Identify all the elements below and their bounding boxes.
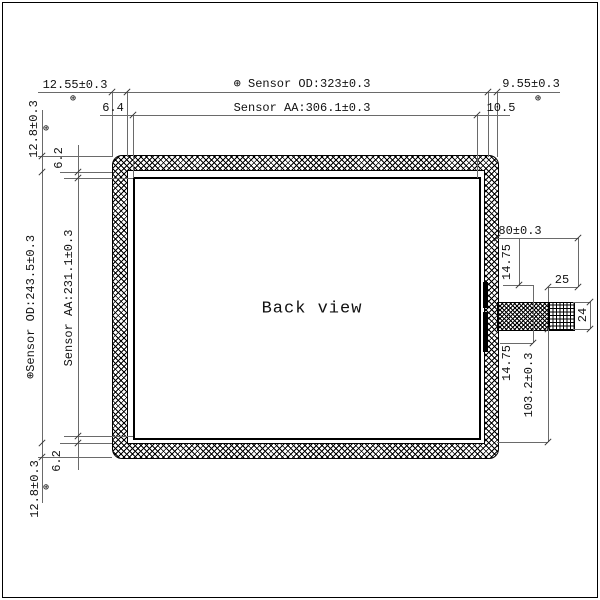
- dim-label-od-left-margin: 12.55±0.3: [43, 79, 108, 91]
- dim-line-tail-offset-link: [533, 285, 534, 343]
- ext-line-left-top-aa: [64, 178, 133, 179]
- dim-label-od-right-margin: 9.55±0.3: [502, 78, 560, 90]
- dim-label-sensor-od-width: ⊕ Sensor OD:323±0.3: [234, 78, 371, 90]
- dim-line-tail-length: [497, 238, 578, 239]
- engineering-drawing: Back view: [0, 0, 600, 600]
- ext-line-left-bottom-band: [60, 443, 112, 444]
- dim-line-top-aa: [100, 115, 510, 116]
- fpc-bond-pad-upper: [483, 282, 488, 308]
- dim-label-tail-lower-offset: 14.75: [501, 345, 513, 381]
- dim-label-sensor-od-height: ⊕Sensor OD:243.5±0.3: [25, 235, 37, 379]
- dim-line-stiffener-width: [548, 287, 578, 288]
- dim-line-left-aa: [78, 145, 79, 470]
- ext-line-band-left-inner: [127, 92, 128, 157]
- ext-line-panel-bottom-right: [497, 442, 548, 443]
- ext-line-aa-right: [477, 115, 478, 178]
- fpc-bond-pad-lower: [483, 312, 488, 352]
- ext-line-left-top-band: [60, 172, 112, 173]
- ext-line-aa-left: [133, 115, 134, 178]
- position-symbol-icon: ⊕: [43, 125, 49, 135]
- dim-label-sensor-aa-width: Sensor AA:306.1±0.3: [234, 102, 371, 114]
- dim-label-left-top-margin: 12.8±0.3: [28, 100, 40, 158]
- dim-label-tail-length: 80±0.3: [498, 225, 541, 237]
- view-title: Back view: [262, 301, 363, 318]
- dim-label-tail-upper-offset: 14.75: [501, 244, 513, 280]
- position-symbol-icon: ⊕: [70, 95, 76, 105]
- dim-line-tail-upper-offset: [519, 238, 520, 285]
- dim-label-aa-right-margin: 10.5: [487, 102, 516, 114]
- dim-label-stiffener-width: 25: [555, 274, 569, 286]
- dim-label-left-bottom-aa-gap: 6.2: [51, 450, 63, 472]
- fpc-tail: [497, 302, 550, 331]
- position-symbol-icon: ⊕: [43, 484, 49, 494]
- dim-label-aa-left-margin: 6.4: [102, 102, 124, 114]
- dim-line-stiffener-height: [590, 302, 591, 329]
- dim-label-stiffener-height: 24: [577, 308, 589, 322]
- ext-line-stiffener-left: [548, 287, 549, 302]
- dim-line-tail-bottom-offset: [548, 329, 549, 442]
- fpc-stiffener: [548, 302, 575, 331]
- dim-line-tail-length-end: [578, 238, 579, 287]
- ext-line-left-bottom-aa: [64, 436, 133, 437]
- dim-label-sensor-aa-height: Sensor AA:231.1±0.3: [63, 230, 75, 367]
- dim-label-left-bottom-margin: 12.8±0.3: [29, 460, 41, 518]
- dim-label-tail-bottom-offset: 103.2±0.3: [523, 353, 535, 418]
- ext-line-tail-lower: [500, 343, 533, 344]
- dim-label-left-top-aa-gap: 6.2: [53, 147, 65, 169]
- ext-line-left-top-outer: [38, 156, 112, 157]
- position-symbol-icon: ⊕: [535, 95, 541, 105]
- dim-line-top-od: [38, 92, 560, 93]
